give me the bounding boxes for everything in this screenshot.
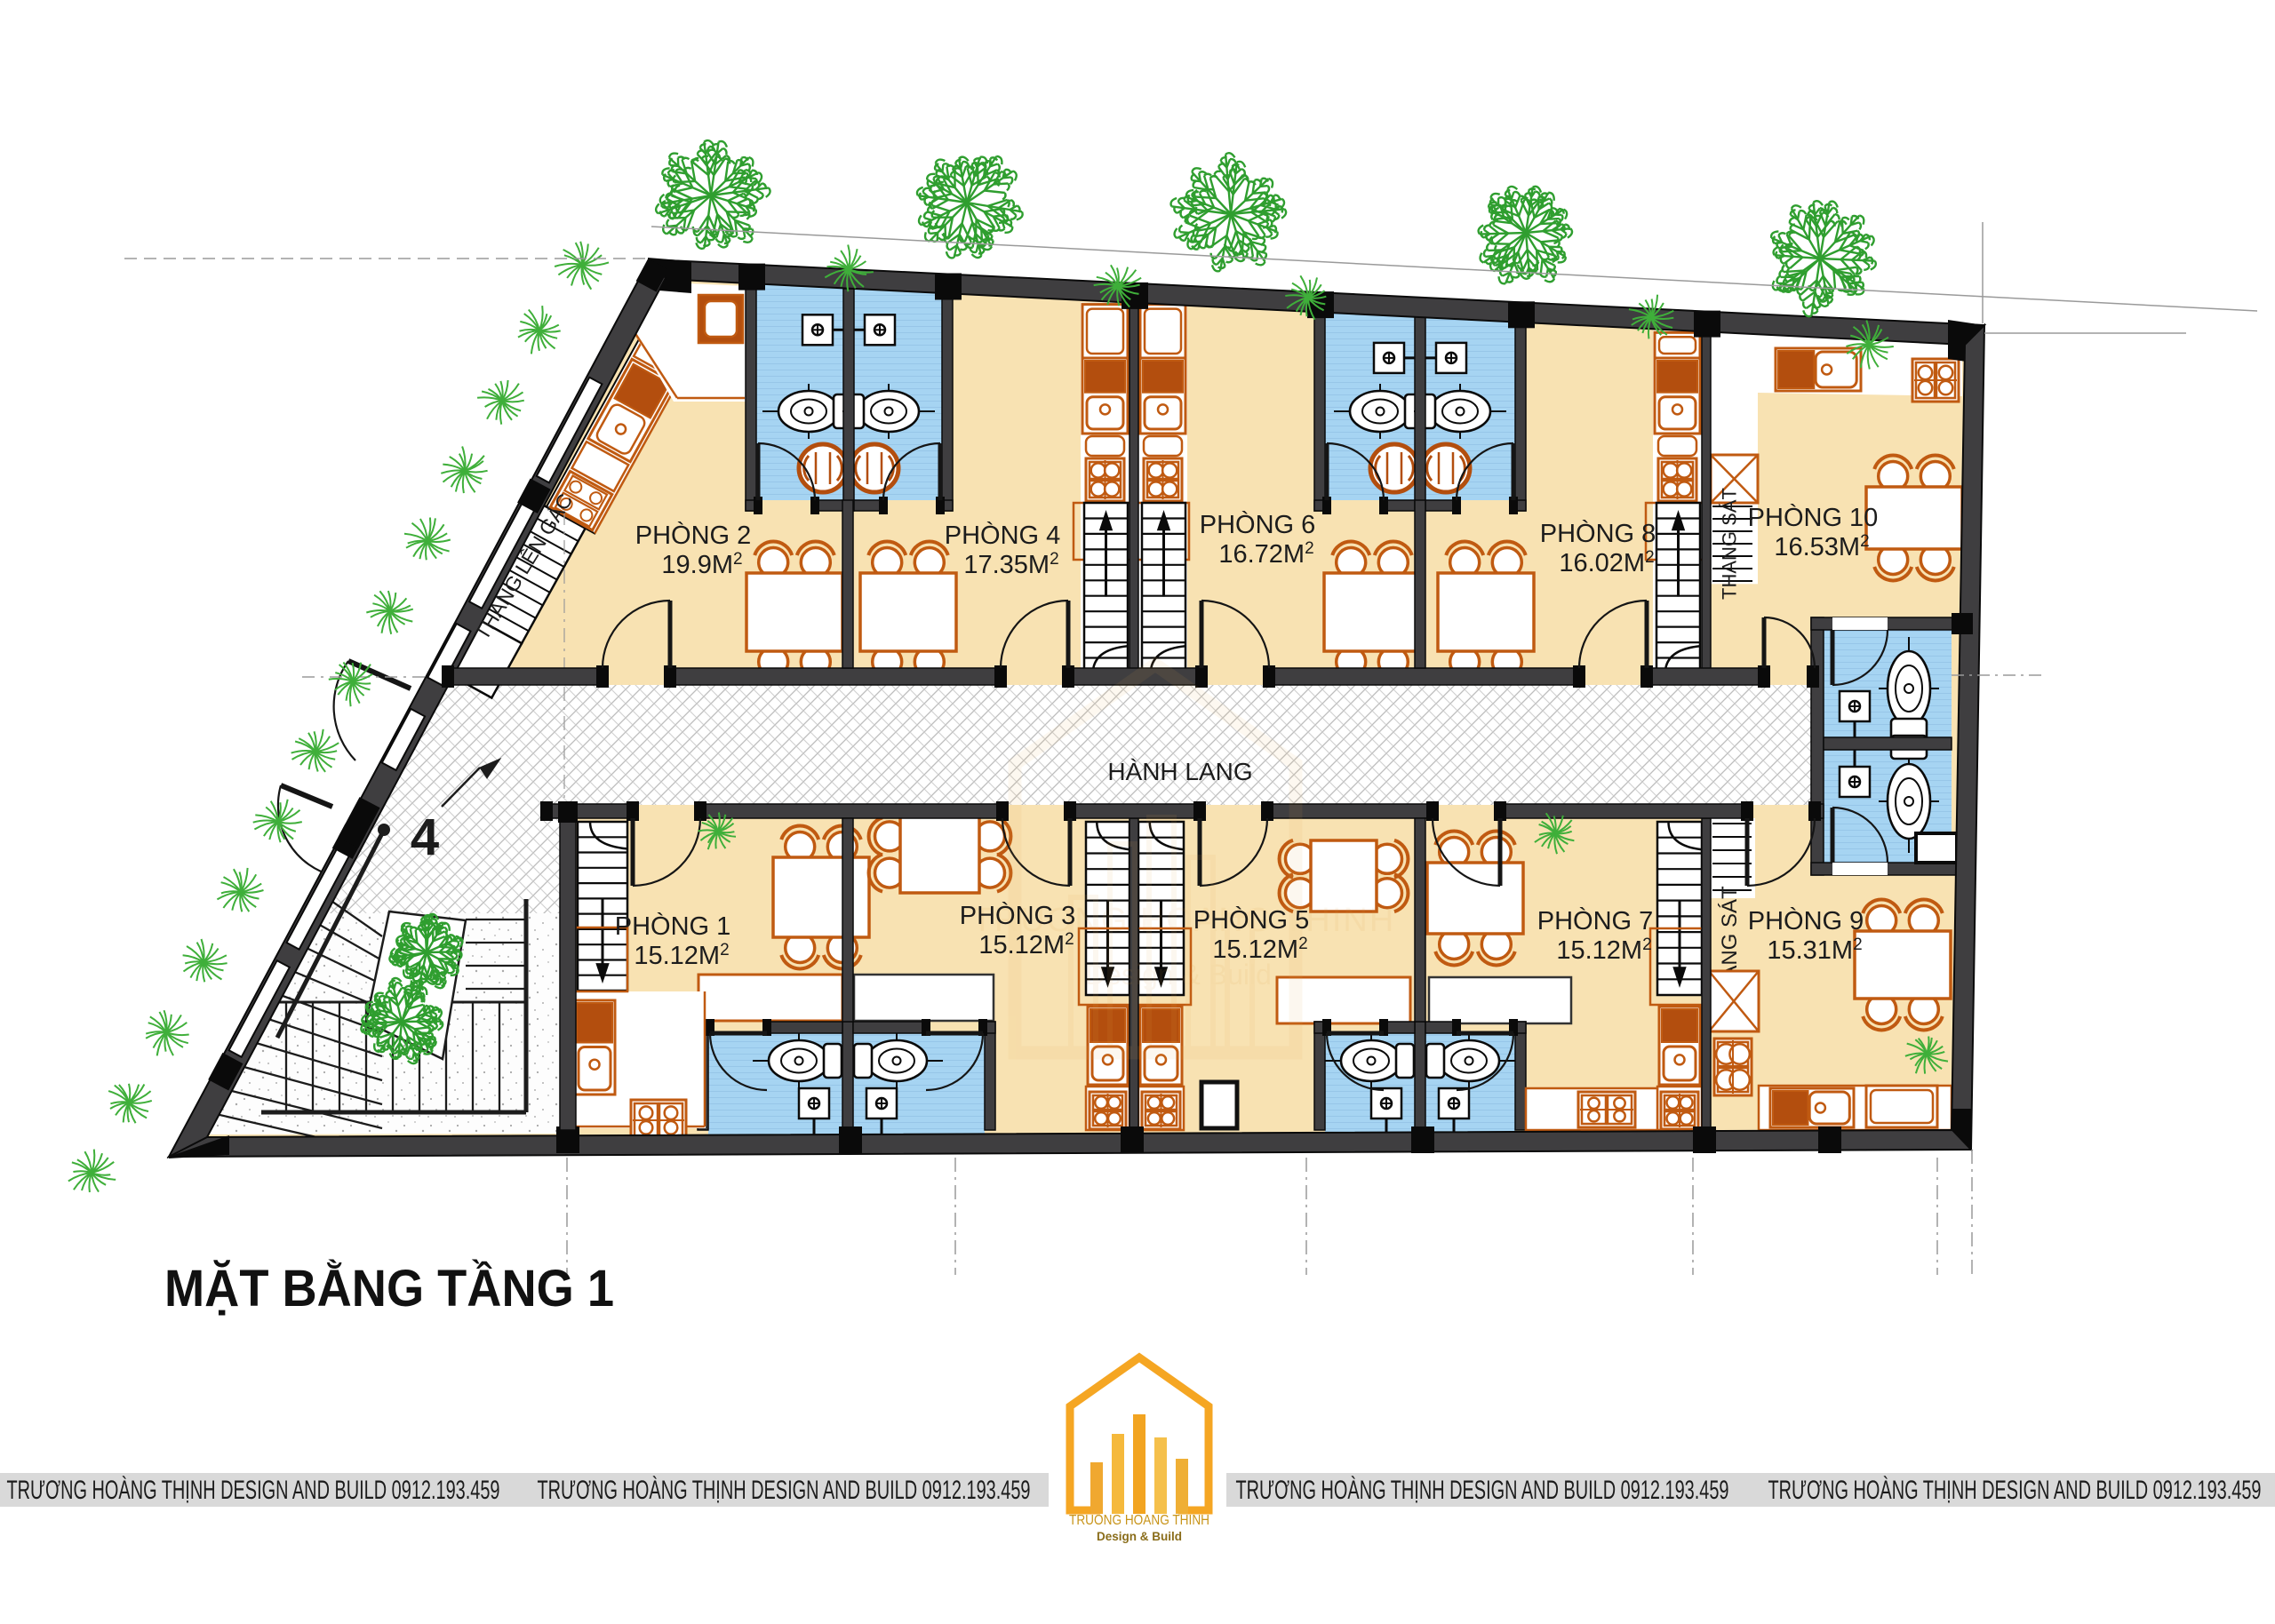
svg-text:TRƯƠNG HOÀNG THỊNH DESIGN AND: TRƯƠNG HOÀNG THỊNH DESIGN AND BUILD 0912…: [7, 1476, 500, 1505]
svg-text:TRƯƠNG HOÀNG THỊNH DESIGN AND: TRƯƠNG HOÀNG THỊNH DESIGN AND BUILD 0912…: [1768, 1476, 2262, 1505]
svg-text:THANG SÁT: THANG SÁT: [1719, 488, 1741, 600]
svg-text:PHÒNG 10: PHÒNG 10: [1748, 503, 1879, 532]
svg-text:15.12M2: 15.12M2: [978, 930, 1074, 959]
svg-text:15.12M2: 15.12M2: [1556, 935, 1651, 965]
svg-text:MẶT BẰNG TẦNG 1: MẶT BẰNG TẦNG 1: [164, 1260, 614, 1318]
svg-text:PHÒNG 4: PHÒNG 4: [945, 521, 1061, 550]
svg-text:Design & Build: Design & Build: [1097, 1530, 1182, 1543]
svg-text:PHÒNG 8: PHÒNG 8: [1540, 519, 1656, 548]
svg-text:PHÒNG 5: PHÒNG 5: [1193, 905, 1310, 935]
svg-text:16.53M2: 16.53M2: [1774, 532, 1869, 561]
svg-text:PHÒNG 1: PHÒNG 1: [615, 912, 731, 941]
svg-text:TRƯƠNG HOÀNG THỊNH DESIGN AND: TRƯƠNG HOÀNG THỊNH DESIGN AND BUILD 0912…: [538, 1476, 1031, 1505]
svg-text:HÀNH LANG: HÀNH LANG: [1107, 758, 1252, 785]
svg-text:TRUONG HOANG THINH: TRUONG HOANG THINH: [1069, 1513, 1209, 1528]
svg-text:TRƯƠNG HOÀNG THỊNH DESIGN AND: TRƯƠNG HOÀNG THỊNH DESIGN AND BUILD 0912…: [1236, 1476, 1729, 1505]
svg-text:PHÒNG 7: PHÒNG 7: [1537, 906, 1654, 935]
svg-text:PHÒNG 3: PHÒNG 3: [960, 901, 1076, 930]
svg-text:PHÒNG 9: PHÒNG 9: [1748, 906, 1864, 935]
svg-text:PHÒNG 2: PHÒNG 2: [635, 521, 752, 550]
svg-text:4: 4: [411, 808, 439, 866]
svg-text:15.12M2: 15.12M2: [634, 941, 729, 970]
svg-text:15.12M2: 15.12M2: [1212, 935, 1307, 964]
svg-text:15.31M2: 15.31M2: [1767, 935, 1862, 965]
svg-text:16.02M2: 16.02M2: [1559, 548, 1654, 577]
svg-text:19.9M2: 19.9M2: [661, 550, 742, 579]
svg-text:PHÒNG 6: PHÒNG 6: [1200, 510, 1316, 539]
svg-text:16.72M2: 16.72M2: [1218, 539, 1313, 569]
svg-text:17.35M2: 17.35M2: [963, 550, 1058, 579]
